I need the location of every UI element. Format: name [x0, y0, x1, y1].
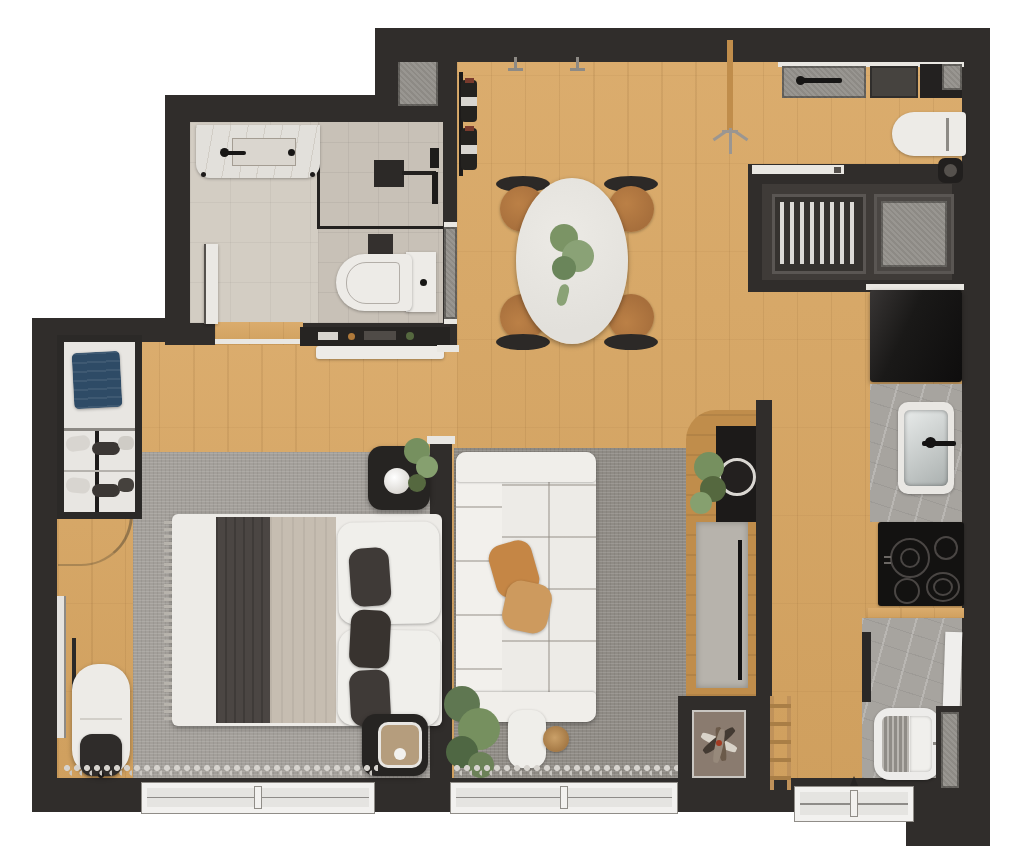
nightstand-tray	[378, 722, 422, 768]
ladder-rung	[770, 776, 791, 780]
sofa-back-cushions	[456, 452, 502, 722]
outer-wall-left	[32, 318, 57, 812]
condenser-mat	[881, 201, 947, 267]
hall-threshold	[437, 345, 459, 352]
chair-back	[496, 334, 550, 350]
vanity-leg	[201, 172, 206, 177]
table-plant	[552, 256, 576, 280]
toilet-button	[420, 279, 427, 286]
living-window	[450, 782, 678, 814]
shoe-rack-shelf-line	[64, 470, 135, 472]
ironing-board	[892, 112, 966, 156]
wine-bottle-label	[461, 145, 477, 154]
laundry-tank-basin	[910, 716, 932, 772]
coat-stand-pole	[727, 40, 733, 132]
balcony-door-trim	[752, 165, 844, 174]
laundry-bucket-inner	[944, 164, 957, 177]
wall-hook-icon	[570, 68, 585, 71]
ladder-rung	[770, 704, 791, 708]
shower-glass-horizontal	[317, 226, 443, 229]
laundry-dark-appliance	[870, 66, 918, 98]
bedroom-window	[141, 782, 375, 814]
bed-cushion-dark	[349, 609, 392, 669]
ladder-rung	[770, 740, 791, 744]
console-item-box	[364, 331, 396, 340]
wall-niche-mat	[941, 712, 959, 788]
outer-wall-top	[375, 28, 990, 62]
shoe	[92, 484, 120, 497]
bed-beige-duvet	[270, 517, 336, 723]
leaning-board	[943, 632, 963, 711]
floor-mirror	[57, 596, 66, 738]
nightstand-plant	[408, 474, 426, 492]
entry-bench	[316, 346, 444, 359]
ladder	[770, 696, 792, 790]
shower-mixer-bar	[432, 172, 438, 204]
sink-faucet-base	[925, 437, 936, 448]
sofa-armrest	[456, 452, 596, 482]
window-mullion	[560, 786, 568, 809]
chair-back	[604, 334, 658, 350]
table-lamp	[384, 468, 410, 494]
washing-machine-bar	[800, 78, 842, 83]
kitchen-sink-basin	[904, 410, 948, 486]
armchair-seam	[80, 718, 122, 720]
divider-wall-cap	[427, 436, 455, 444]
coat-stand-hook	[722, 130, 738, 133]
floor-plan	[0, 0, 1024, 852]
console-item-books	[318, 332, 338, 340]
wardrobe-shelf-line	[64, 428, 135, 431]
wall-dining-west	[443, 28, 457, 98]
wood-stool	[543, 726, 569, 752]
tray-ball	[394, 748, 406, 760]
folded-clothes	[72, 351, 123, 409]
wine-bottle-label	[461, 97, 477, 106]
bathroom-door-threshold	[215, 339, 303, 344]
shoe	[118, 478, 134, 492]
shower-mixer	[430, 148, 439, 168]
kitchen-window	[794, 786, 914, 822]
niche-trim-top	[444, 222, 457, 227]
ladder-rung	[770, 758, 791, 762]
wall-hook-icon	[508, 68, 523, 71]
oven-handle	[862, 632, 871, 702]
ironing-board-leg	[946, 118, 949, 151]
plant-pot	[508, 710, 546, 768]
tv	[738, 540, 742, 680]
vanity-knob	[288, 149, 295, 156]
entry-doormat	[398, 58, 438, 106]
shoe	[65, 477, 90, 494]
bedroom-sheer-curtain	[62, 764, 378, 778]
window-mullion	[850, 790, 858, 817]
drying-rack-icon	[780, 202, 858, 264]
service-shaft-mat	[942, 64, 962, 90]
refrigerator	[870, 290, 962, 382]
cooktop-controls	[884, 562, 891, 564]
toilet-seat-line	[346, 262, 400, 304]
bed-charcoal-runner	[216, 517, 270, 723]
window-mullion	[254, 786, 262, 809]
frosted-niche	[444, 227, 457, 319]
cooktop-controls	[884, 556, 891, 558]
burner	[934, 536, 958, 560]
shoe	[118, 436, 134, 450]
shower-head	[374, 160, 404, 187]
console-item-amber	[348, 333, 355, 340]
toilet-flush-box	[368, 234, 393, 255]
outer-wall-right	[962, 28, 990, 846]
vanity-faucet-base	[220, 148, 229, 157]
burner	[900, 548, 920, 568]
burner	[933, 578, 953, 596]
bed-cushion-dark	[348, 547, 392, 608]
counter-wood-strip	[866, 608, 964, 618]
shower-arm	[402, 171, 436, 175]
bathroom-door-leaf	[204, 244, 218, 324]
wine-bottle-cap	[465, 78, 474, 83]
washing-machine-knob	[796, 76, 805, 85]
dried-accent	[716, 740, 722, 746]
laundry-tank-washboard	[882, 716, 909, 772]
ladder-rung	[770, 722, 791, 726]
balcony-door-handle	[834, 167, 841, 173]
shoe	[92, 442, 120, 455]
living-sheer-curtain	[452, 764, 678, 778]
burner	[894, 578, 920, 604]
niche-trim-bottom	[444, 319, 457, 324]
bed-foot-fringe	[164, 520, 172, 720]
vanity-leg	[310, 172, 315, 177]
console-item-plant	[406, 332, 414, 340]
wine-bottle-cap	[465, 126, 474, 131]
planter-plant	[690, 492, 712, 514]
